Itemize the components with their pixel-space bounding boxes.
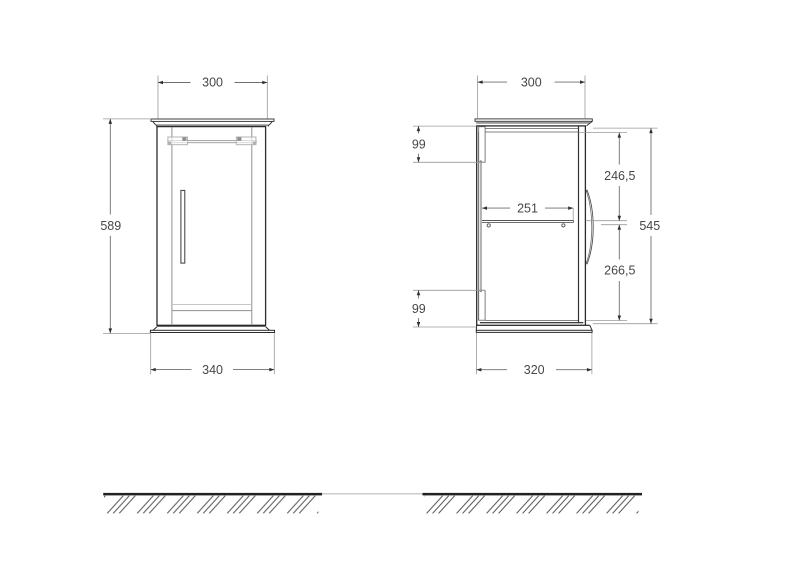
svg-text:300: 300 <box>202 76 223 90</box>
svg-text:320: 320 <box>524 363 545 377</box>
svg-text:246,5: 246,5 <box>604 169 635 183</box>
svg-text:266,5: 266,5 <box>604 264 635 278</box>
svg-text:251: 251 <box>517 201 538 215</box>
svg-text:99: 99 <box>412 302 426 316</box>
svg-text:99: 99 <box>412 137 426 151</box>
svg-text:545: 545 <box>639 219 660 233</box>
svg-text:589: 589 <box>100 219 121 233</box>
svg-text:340: 340 <box>202 363 223 377</box>
svg-text:300: 300 <box>521 75 542 89</box>
